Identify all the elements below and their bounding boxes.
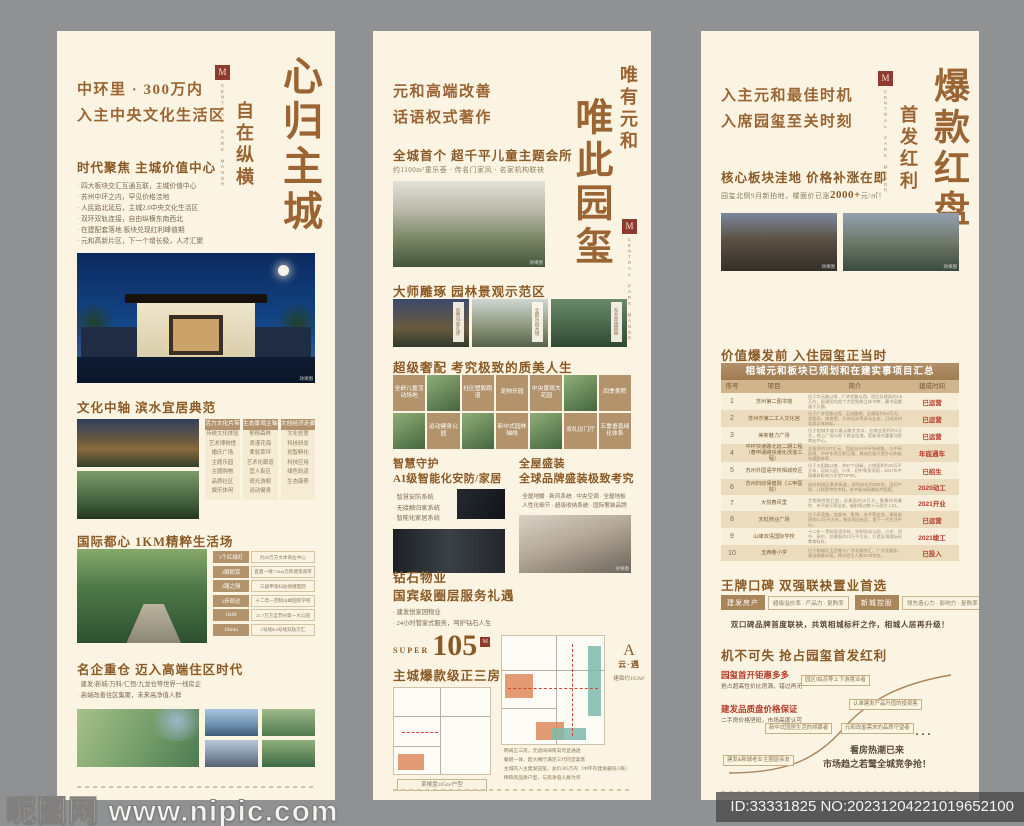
brand-seal-icon: M [622,219,637,234]
section-title-floorplan: 主城爆款级正三房 [393,665,501,684]
column-item: 婚庆广场 [205,449,240,459]
cell-status: 已运营 [905,515,959,525]
cell-status: 2020动工 [905,482,959,492]
section-title-duo: 王牌口碑 双强联袂置业首选 [721,575,887,594]
plan-area: 建面约105M² [609,674,649,682]
city-photo [205,709,258,736]
amenity-cell: 五重垂直绿化体系 [599,413,631,449]
column-header: 生态景观主轴 [243,419,278,430]
floorplan-big [501,635,605,745]
cell-desc: 位于相城区玉西巷与广济北路交汇，广济北路东，建设规模36班，预计招生人数1570… [805,547,905,559]
1km-text: 2号线&4号线双轨交汇 [251,624,315,636]
entrance-photo: 效果图 [721,213,837,271]
amenity-cell [564,375,596,411]
headline-line2: 入席园玺至关时刻 [721,109,853,135]
cell-no: 9 [721,533,743,540]
column-item: 艺术化廊道 [243,459,278,469]
amenity-cell [530,413,562,449]
photo-tag: 效果图 [944,264,958,270]
cell-no: 3 [721,432,743,439]
poster-left: M CENTRAL PARK MANOR 心归主城 自在纵横 中环里 · 300… [57,31,335,800]
cell-project: 苏州市第二工人文化宫 [743,416,805,422]
table-header-cell: 简介 [805,380,905,393]
1km-row: 1眼即赏 直面一线7.5km元和塘景观带 [213,566,315,578]
table-row: 6 苏州妇幼保健院（三甲医院） 选址相城区黄桥街道，规划床位约800张，设妇产科… [721,479,959,495]
deco-title1: 全屋盛装 [519,457,565,472]
plan-type: A [609,643,649,659]
section-title-1km: 国际都心 1KM精粹生活场 [77,531,233,550]
amenity-cell [393,413,425,449]
column-item: 科技研发 [281,440,316,450]
cell-project: 山峰双语国际学校 [743,534,805,540]
bullet-item: 高端改善住区集聚，未来高净值人群 [77,690,307,701]
1km-text: 十二年一贯制山峰国际学校 [251,595,315,607]
column-items: 郁郁森林浪漫花海柔软草坪艺术化廊道宜人街区观光游憩运动健身 [243,430,278,497]
rush-point2: 建发品质盘价格保证 [721,703,798,715]
plan-type-label: A 云·遇 建面约105M² [609,643,649,682]
brand-tags: 超级溢价率 · 产品力 · 复购率 [768,596,849,610]
curve-label: 元和改善需求的品质守望者 [841,723,914,734]
night-gate-photo: 效果图 [77,253,315,383]
cell-no: 7 [721,500,743,507]
cell-project: 苏州妇幼保健院（三甲医院） [743,481,805,493]
section-title-property1: 钻石物业 [393,567,447,586]
cell-desc: 十二年一贯制双语学校，学制含幼儿园、小学、初中、高中，总建面约12万平方米，打造… [805,528,905,545]
landscape-photo: 全龄乐园大境 [472,299,548,347]
column-item: 科技应用 [281,459,316,469]
amenity-cell: 社区塑胶跑道 [462,375,494,411]
page-canvas: M CENTRAL PARK MANOR 心归主城 自在纵横 中环里 · 300… [0,0,1024,826]
1km-row: 1步即达 十二年一贯制山峰国际学校 [213,595,315,607]
bullet-item: 餐厨一体，超大横厅满足三代同堂宴客 [501,756,641,765]
poster-middle: 元和高端改善 话语权式著作 唯有元和 唯此园玺 M CENTRAL PARK M… [373,31,651,800]
bullet-item: 24小时管家式服务，呵护钻石人生 [393,618,613,629]
bullet-item: 在建配套落地 板块兑现红利峰值期 [77,225,287,236]
amenity-label: 宠物乐园 [500,389,523,397]
landscape-label: 全龄乐园大境 [532,302,543,342]
amenity-cell: 宠物乐园 [496,375,528,411]
amenity-cell [462,413,494,449]
column-items: 传统文化体验艺术博物馆婚庆广场主题乐园主题购物品质社区娱乐休闲 [205,430,240,497]
column-item: 绿色轨道 [281,468,316,478]
1km-text: 直面一线7.5km元和塘景观带 [251,566,315,578]
interior-photo: 效果图 [519,515,631,573]
culture-photo-2 [77,471,199,519]
cell-project: 玉西巷小学 [743,550,805,556]
closing-line2: 市场趋之若鹜全城竞争抢！ [797,757,957,771]
smart-title1: 智慧守护 [393,457,439,472]
moon-icon [278,265,289,276]
brand-badge: 新城控股 [855,595,899,610]
water-reflection [77,357,315,383]
smart-title2: AI级智能化安防/家居 [393,472,502,487]
curve-label: 建发&新城老业主圈层亲友 [723,755,794,766]
cell-no: 4 [721,450,743,457]
table-title: 相城元和板块已规划和在建实事项目汇总 [721,363,959,380]
section-title-value: 时代聚焦 主城价值中心 [77,157,216,176]
landscape-photo: 迎宾归家礼序 [393,299,469,347]
cell-desc: 位于华元路以南、广济北路以西，项目总建面约4.6万方，配建国内首个大型智能立体书… [805,393,905,410]
amenity-cell: 全龄儿童活动场地 [393,375,425,411]
column-item: 柔软草坪 [243,449,278,459]
column-items: 文化创意科技研发创智孵化科技应用绿色轨道生态康养 [281,430,316,487]
table-header-cell: 建成时间 [905,380,959,393]
column-item: 观光游憩 [243,478,278,488]
culture-photo-1 [77,419,199,467]
subline-post: 元/㎡！ [861,192,886,200]
1km-badge: 1个红绿灯 [213,551,249,563]
bullet-item: 稀缺高品质户型，与高净值人群为邻 [501,774,641,783]
brand-badge-pair: 建发房产 超级溢价率 · 产品力 · 复购率 [721,595,849,610]
amenity-label: 五重垂直绿化体系 [600,424,630,439]
brand-badges: 建发房产 超级溢价率 · 产品力 · 复购率 新城控股 领先造心力 · 影响力 … [721,595,979,610]
1km-text: 三级甲等妇幼保健医院 [251,580,315,592]
1km-row: 1KM 21.7万方全苏州第一大公园 [213,609,315,621]
bullet-item: 全屋地暖 · 新风系统 · 中央空调 · 全屋地板 [519,493,631,502]
section-title-property2: 国宾级圈层服务礼遇 [393,585,515,604]
headline-line1: 入主元和最佳时机 [721,83,853,109]
projects-table: 相城元和板块已规划和在建实事项目汇总 序号项目简介建成时间 1 苏州第二图书馆 … [721,363,959,561]
cell-status: 年底通车 [905,448,959,458]
cell-desc: 大悦城控股打造，总建面约10万方，集聚时尚餐饮、亲子娱乐等业态，辐射周边数十万居… [805,497,905,509]
table-row: 5 苏州外国语学校相城校区 位于太阳路以南，共57个班级，占地面积约10万平方米… [721,462,959,479]
amenity-label: 社区塑胶跑道 [463,386,493,401]
calligraphy-subtitle: 首发红利 [899,105,917,193]
cell-desc: 总投资约137亿元，西起苏州中环快速路，与中环西线、中环东线互联互通，建成后极大… [805,445,905,462]
column-item: 品质社区 [205,478,240,488]
column-header: 活力文化片带 [205,419,240,430]
brands-bullet-list: 建发/新城/万科/仁恒/九龙仓等世界一线房企高端改善住区集聚，未来高净值人群 [77,679,307,701]
landscape-photo: 东方意境园林 [551,299,627,347]
cell-status: 2021开业 [905,498,959,508]
cell-status: 已运营 [905,414,959,424]
bullet-item: 双环双轨连接，自由纵横东南西北 [77,214,287,225]
super105-lockup: SUPER 105 M [393,633,490,659]
table-row: 3 美新魅力广场 位于相城大道与嘉元路交叉口，总商业面积约3万方，地上广场与地下… [721,427,959,444]
closing-line1: 看房热潮已来 [797,743,957,757]
bullet-item: 智慧安防系统 [393,493,453,504]
1km-badge: 1步即达 [213,595,249,607]
amenity-label: 中央景观大花园 [531,386,561,401]
deco-column: 全屋盛装 全球品牌盛装极致考究 全屋地暖 · 新风系统 · 中央空调 · 全屋地… [519,457,631,617]
cell-project: 苏州第二图书馆 [743,399,805,405]
greenbelt-photo [262,740,315,767]
poster-headline: 中环里 · 300万内 入主中央文化生活区 [77,77,226,129]
landscape-label: 东方意境园林 [611,302,622,342]
cell-no: 2 [721,415,743,422]
ellipsis: ··· [915,727,933,742]
1km-row: 10min 2号线&4号线双轨交汇 [213,624,315,636]
super-number: 105 [432,633,477,659]
headline-line1: 元和高端改善 [393,79,492,105]
culture-column: 活力文化片带 传统文化体验艺术博物馆婚庆广场主题乐园主题购物品质社区娱乐休闲 [205,419,240,500]
photo-tag: 效果图 [300,376,314,382]
culture-column: 文创经济走廊 文化创意科技研发创智孵化科技应用绿色轨道生态康养 [281,419,316,500]
column-header: 文创经济走廊 [281,419,316,430]
bullet-item: 明阔正三房，无遮阔绰南向尽显通透 [501,747,641,756]
column-item: 郁郁森林 [243,430,278,440]
cell-no: 6 [721,484,743,491]
section-title-price: 核心板块洼地 价格补涨在即 [721,167,887,186]
cell-desc: 位于采莲路，含超市、影院、亲子等业态，建筑面积约5.2万平方米，服务周边社区，是… [805,511,905,528]
cell-status: 已投入 [905,548,959,558]
culture-table: 活力文化片带 传统文化体验艺术博物馆婚庆广场主题乐园主题购物品质社区娱乐休闲 生… [205,419,315,500]
gate-screen [169,315,223,355]
cell-no: 8 [721,516,743,523]
cell-desc: 位于相城大道与嘉元路交叉口，总商业面积约3万方，地上广场与地下商业连通，是板块内… [805,427,905,444]
table-row: 4 中环快速路北延二期工程（春申湖路快速化改造工程） 总投资约137亿元，西起苏… [721,444,959,462]
price-subline: 园玺北侧9月新拍地，楼面价已涨2000+元/㎡！ [721,189,886,201]
cell-project: 美新魅力广场 [743,433,805,439]
image-id-bar: ID:33331825 NO:20231204221019652100 [716,792,1024,822]
poster-headline: 入主元和最佳时机 入席园玺至关时刻 [721,83,853,135]
plan-bullets: 明阔正三房，无遮阔绰南向尽显通透餐厨一体，超大横厅满足三代同堂宴客主城内入主建发… [501,747,641,783]
cell-project: 天虹商业广场 [743,517,805,523]
table-row: 9 山峰双语国际学校 十二年一贯制双语学校，学制含幼儿园、小学、初中、高中，总建… [721,528,959,545]
amenity-cell: 中央景观大花园 [530,375,562,411]
value-bullet-list: 四大板块交汇互通互联，主城价值中心苏州中环之内，罕见价格洼地人民路北延后，主城2… [77,181,287,247]
section-title-landscape: 大师雕琢 园林景观示范区 [393,281,546,300]
section-title-clubhouse: 全城首个 超千平儿童主题会所 [393,145,573,164]
column-item: 浪漫花海 [243,440,278,450]
amenity-grid: 全龄儿童活动场地社区塑胶跑道宠物乐园中央景观大花园四季美院运动健身公园新中式园林… [393,375,631,449]
amenity-label: 全龄儿童活动场地 [394,386,424,401]
cell-desc: 选址相城区黄桥街道，规划床位约800张，设妇产科、儿科等特色专科，补齐板块高端医… [805,481,905,493]
poster-right: 入主元和最佳时机 入席园玺至关时刻 M CENTRAL PARK MANOR 爆… [701,31,979,800]
calligraphy-title: 爆款红盘 [931,67,967,231]
1km-list: 1个红绿灯 约20万方文体商业中心 1眼即赏 直面一线7.5km元和塘景观带 1… [213,551,315,636]
cell-desc: 位于太阳路以南，共57个班级，占地面积约10万平方米，设幼儿园、小学、初中等多学… [805,462,905,479]
rush-point1: 园玺首开钜惠多多 [721,669,789,681]
cell-project: 中环快速路北延二期工程（春申湖路快速化改造工程） [743,444,805,462]
duo-statement: 双口碑品牌首度联袂，共筑相城标杆之作，相城人居再升级！ [701,619,979,630]
amenity-cell [427,375,459,411]
cell-no: 1 [721,398,743,405]
section-title-amenities: 超级奢配 考究极致的质美人生 [393,357,573,376]
rush-point1-sub: 抢占超高性价比房源，错过再无 [721,681,802,690]
section-title-rush: 机不可失 抢占园玺首发红利 [721,645,887,664]
1km-row: 1路之隔 三级甲等妇幼保健医院 [213,580,315,592]
column-item: 主题购物 [205,468,240,478]
amenity-label: 运动健身公园 [428,424,458,439]
amenity-cell: 运动健身公园 [427,413,459,449]
table-row: 8 天虹商业广场 位于采莲路，含超市、影院、亲子等业态，建筑面积约5.2万平方米… [721,511,959,528]
bullet-item: 智能化家居系统 [393,514,453,525]
poster-headline: 元和高端改善 话语权式著作 [393,79,492,131]
column-item: 生态康养 [281,478,316,488]
column-item: 娱乐休闲 [205,487,240,497]
bullet-item: 建发悦家园物业 [393,607,613,618]
gatehouse [137,303,255,357]
1km-text: 21.7万方全苏州第一大公园 [251,609,315,621]
section-title-brands: 名企重仓 迈入高端住区时代 [77,659,243,678]
1km-badge: 1眼即赏 [213,566,249,578]
rush-point2-sub: 二手房价格坚挺，市场高度认可 [721,715,802,724]
clubhouse-photo: 效果图 [393,181,545,267]
amenity-label: 新中式园林轴线 [497,424,527,439]
table-row: 2 苏州市第二工人文化宫 位于广济北路以西、玉成路南，总建面约9.6万方，含剧场… [721,410,959,427]
calligraphy-subtitle: 自在纵横 [235,101,253,189]
bullet-item: 人性化细节 · 超级收纳系统 · 国际奢装品牌 [519,502,631,511]
aerial-photo: 效果图 [843,213,959,271]
landscape-photos: 迎宾归家礼序 全龄乐园大境 东方意境园林 [393,299,627,347]
culture-column: 生态景观主轴 郁郁森林浪漫花海柔软草坪艺术化廊道宜人街区观光游憩运动健身 [243,419,278,500]
garden-path-photo [77,549,207,643]
cell-project: 苏州外国语学校相城校区 [743,468,805,474]
cell-no: 10 [721,550,743,557]
1km-badge: 1KM [213,609,249,621]
skyline-photo [205,740,258,767]
column-item: 传统文化体验 [205,430,240,440]
subline-pre: 园玺北侧9月新拍地，楼面价已涨 [721,192,830,200]
brand-badge-pair: 新城控股 领先造心力 · 影响力 · 复购率 [855,595,979,610]
footnote-line [393,789,631,791]
property-bullets: 建发悦家园物业24小时管家式服务，呵护钻石人生 [393,607,613,629]
brand-seal-icon: M [878,71,893,86]
column-item: 文化创意 [281,430,316,440]
brand-seal-icon: M [480,637,490,647]
cell-no: 5 [721,467,743,474]
bullet-item: 元和高新片区，下一个增长极，人才汇聚 [77,236,287,247]
amenity-cell: 新中式园林轴线 [496,413,528,449]
subline-em: 2000+ [830,189,861,201]
face-scan-photo [457,489,505,519]
curve-label: 认准建发产品升值的投资客 [849,699,922,710]
deco-title2: 全球品牌盛装极致考究 [519,472,634,487]
table-body: 1 苏州第二图书馆 位于华元路以南、广济北路以西，项目总建面约4.6万方，配建国… [721,393,959,561]
cell-desc: 位于广济北路以西、玉成路南，总建面约9.6万方，含剧场、体育馆、文体培训等多元业… [805,410,905,427]
cell-status: 已招生 [905,466,959,476]
bullet-item: 人民路北延后，主城2.0中央文化生活区 [77,203,287,214]
bullet-item: 无接触归家系统 [393,504,453,515]
column-item: 创智孵化 [281,449,316,459]
cell-project: 大悦春风里 [743,500,805,506]
brand-name: CENTRAL PARK MANOR [627,237,632,341]
cell-status: 2021竣工 [905,532,959,542]
section-title-projects: 价值爆发前 入住园玺正当时 [721,345,887,364]
bullet-item: 建发/新城/万科/仁恒/九龙仓等世界一线房企 [77,679,307,690]
amenity-cell: 四季美院 [599,375,631,411]
smart-bullets: 智慧安防系统无接触归家系统智能化家居系统 [393,493,453,525]
photo-tag: 效果图 [822,264,836,270]
column-item: 主题乐园 [205,459,240,469]
calligraphy-subtitle: 唯有元和 [619,65,637,153]
headline-line1: 中环里 · 300万内 [77,77,226,103]
1km-badge: 1路之隔 [213,580,249,592]
super-label: SUPER [393,646,429,659]
calligraphy-title: 唯此园玺 [571,97,609,269]
bullet-item: 苏州中环之内，罕见价格洼地 [77,192,287,203]
plan-name: 云·遇 [609,659,649,670]
column-item: 艺术博物馆 [205,440,240,450]
demand-curve: 建发&新城老业主圈层亲友新中式园居生活的倾慕者元和改善需求的品质守望者认准建发产… [721,667,959,785]
photo-tag: 效果图 [530,260,544,266]
table-header-cell: 项目 [743,380,805,393]
clubhouse-subline: 约1100m²童乐荟 · 传名门家风 · 名家机构联袂 [393,165,544,175]
watermark: 昵图网 www.nipic.com [6,786,339,826]
table-header-cell: 序号 [721,380,743,393]
brand-tags: 领先造心力 · 影响力 · 复购率 [902,596,979,610]
table-header-row: 序号项目简介建成时间 [721,380,959,393]
headline-line2: 话语权式著作 [393,105,492,131]
amenity-cell: 双礼仪门厅 [564,413,596,449]
brand-badge: 建发房产 [721,595,765,610]
curve-label: 园区/姑苏等上下游置业者 [801,675,870,686]
curve-label: 新中式园居生活的倾慕者 [765,723,832,734]
cell-status: 已运营 [905,431,959,441]
1km-row: 1个红绿灯 约20万方文体商业中心 [213,551,315,563]
photo-tag: 效果图 [616,566,630,572]
landscape-label: 迎宾归家礼序 [453,302,464,342]
section-title-culture: 文化中轴 滨水宜居典范 [77,397,216,416]
deco-bullets: 全屋地暖 · 新风系统 · 中央空调 · 全屋地板人性化细节 · 超级收纳系统 … [519,493,631,510]
column-item: 宜人街区 [243,468,278,478]
amenity-label: 双礼仪门厅 [566,427,595,435]
1km-text: 约20万方文体商业中心 [251,551,315,563]
floorplan-small [393,687,491,775]
column-item: 运动健身 [243,487,278,497]
bullet-item: 主城内入主建发园玺，总价305万内（中环内建发最低/3栋） [501,765,641,774]
cell-status: 已运营 [905,397,959,407]
closing-statement: 看房热潮已来 市场趋之若鹜全城竞争抢！ [797,743,957,771]
headline-line2: 入主中央文化生活区 [77,103,226,129]
table-row: 1 苏州第二图书馆 位于华元路以南、广济北路以西，项目总建面约4.6万方，配建国… [721,393,959,410]
park-photo [262,709,315,736]
masterplan-photo [77,709,199,767]
bullet-item: 四大板块交汇互通互联，主城价值中心 [77,181,287,192]
table-row: 10 玉西巷小学 位于相城区玉西巷与广济北路交汇，广济北路东，建设规模36班，预… [721,545,959,561]
amenity-label: 四季美院 [603,389,626,397]
table-row: 7 大悦春风里 大悦城控股打造，总建面约10万方，集聚时尚餐饮、亲子娱乐等业态，… [721,495,959,511]
1km-badge: 10min [213,624,249,636]
